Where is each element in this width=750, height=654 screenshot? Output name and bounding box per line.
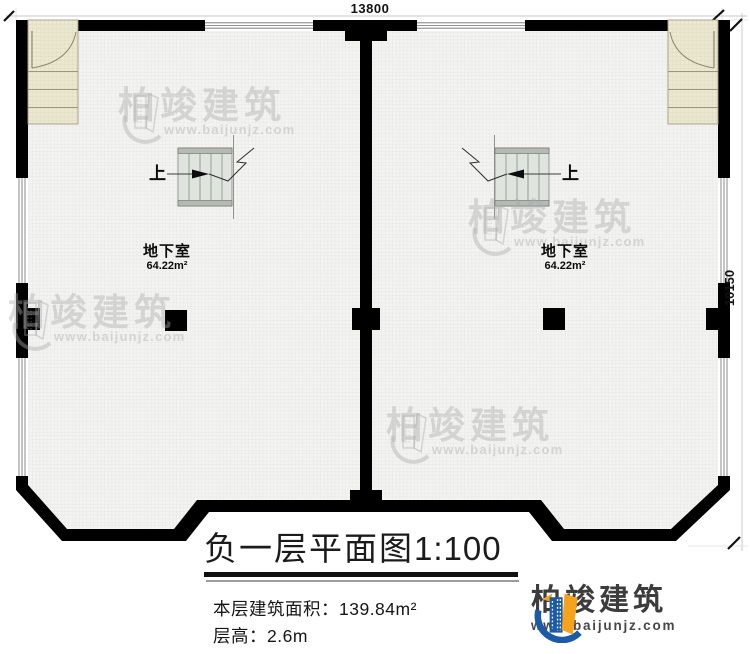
window-left-lower: [16, 358, 28, 476]
window-top-left: [205, 20, 313, 31]
room-area: 64.22m²: [515, 260, 615, 272]
room-area: 64.22m²: [117, 260, 217, 272]
floor-area-label: 本层建筑面积：: [213, 599, 339, 619]
pilaster-left: [28, 308, 40, 330]
room-label-right: 地下室 64.22m²: [515, 244, 615, 272]
room-name: 地下室: [515, 244, 615, 260]
stair-up-label-left: 上: [149, 165, 166, 183]
exterior-stair-top-left: [28, 20, 78, 124]
window-right-lower: [718, 358, 730, 476]
brand-logo-icon: [531, 585, 585, 643]
dimension-right-value: 10150: [722, 258, 738, 318]
window-left-upper: [16, 178, 28, 283]
logo-building-orange: [562, 594, 578, 635]
floor-plan-page: 柏竣建筑 www.baijunjz.com 柏竣建筑 www.baijunjz.…: [0, 0, 750, 654]
exterior-stair-top-right: [668, 20, 718, 124]
stair-up-label-right: 上: [562, 165, 579, 183]
window-top-right: [417, 20, 525, 31]
room-name: 地下室: [117, 244, 217, 260]
floor-area-value: 139.84m²: [339, 599, 417, 619]
column-left: [165, 310, 187, 331]
title-underline: [204, 572, 518, 577]
drawing-title-text: 负一层平面图: [204, 530, 414, 567]
drawing-scale: 1:100: [414, 530, 502, 567]
floor-height-value: 2.6m: [267, 626, 308, 646]
title-underline-thin: [206, 580, 519, 582]
drawing-title: 负一层平面图1:100: [204, 531, 502, 567]
floor-height-label: 层高：: [213, 626, 267, 646]
room-label-left: 地下室 64.22m²: [117, 244, 217, 272]
floor-area-row: 本层建筑面积：139.84m²: [213, 596, 417, 621]
brand-logo: 柏竣建筑 www.baijunjz.com: [531, 585, 676, 633]
column-right: [543, 308, 565, 330]
dimension-top-value: 13800: [337, 1, 403, 16]
pilaster-right: [706, 308, 718, 330]
floor-height-row: 层高：2.6m: [213, 623, 308, 648]
floor: [28, 31, 718, 529]
